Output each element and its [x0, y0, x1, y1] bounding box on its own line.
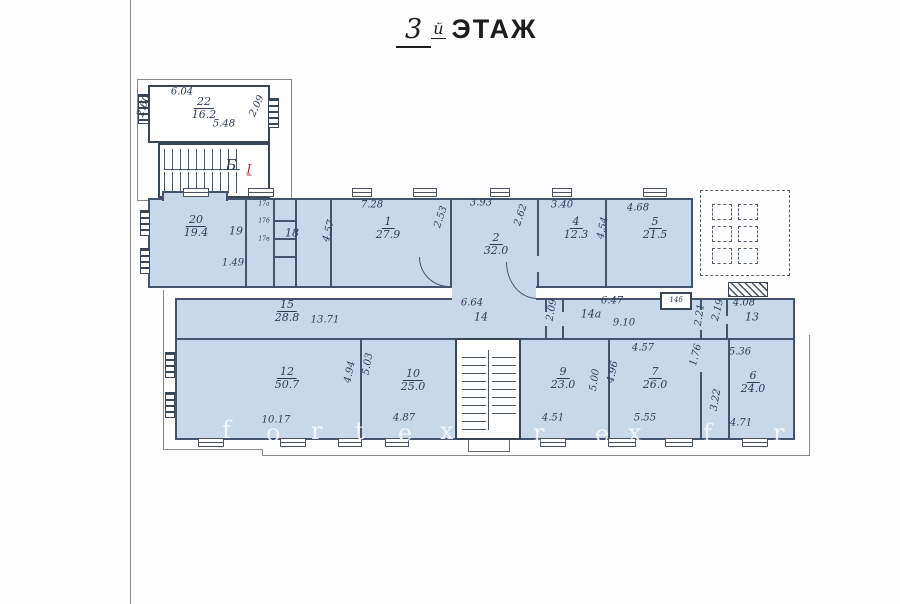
room-14a-label: 14а [581, 308, 602, 321]
room-1-label: 127.9 [376, 216, 401, 242]
room-19-label: 19 [229, 225, 243, 238]
room-2-label-area: 32.0 [484, 245, 509, 257]
title-word: ЭТАЖ [452, 14, 538, 44]
dim-1-49: 1.49 [222, 258, 244, 269]
room-18-label: 18 [285, 227, 299, 240]
watermark-letter: f [703, 419, 712, 447]
dim-3-93: 3.93 [470, 198, 492, 209]
entrance-porch [468, 440, 510, 452]
scan-border-line [130, 0, 131, 604]
watermark-letter: e [595, 420, 609, 448]
hatched-wall-block [728, 282, 768, 297]
room-5-label-number: 5 [649, 216, 662, 229]
main-stair-divider [488, 350, 489, 430]
partition-7-closet [700, 372, 702, 438]
room-2-label: 232.0 [484, 232, 509, 258]
partition-cells-18 [295, 200, 297, 286]
cell-label-3: 17в [258, 236, 269, 243]
title-floor-suffix: й [431, 19, 445, 39]
room-10-label: 1025.0 [401, 368, 426, 394]
dim-13-71: 13.71 [311, 315, 340, 326]
annex-window-right-icon [268, 98, 279, 128]
dim-4-08: 4.08 [733, 298, 755, 309]
room-20-label-number: 20 [186, 214, 206, 227]
window-icon [183, 188, 209, 197]
partition-2-4-upper [537, 200, 539, 256]
window-icon [248, 188, 274, 197]
shaft-cell-2 [738, 204, 758, 220]
watermark-letter: r [311, 417, 322, 445]
room-6-label: 624.0 [741, 370, 766, 396]
partition-19-cells [273, 200, 275, 286]
window-icon [665, 438, 693, 447]
shaft-cell-5 [712, 248, 732, 264]
watermark-letter: x [628, 419, 642, 447]
window-icon [140, 210, 150, 236]
dim-6-47: 6.47 [601, 296, 623, 307]
room-12-label-area: 50.7 [275, 379, 300, 391]
room-1-label-area: 27.9 [376, 229, 401, 241]
partition-1-2 [450, 200, 452, 286]
window-icon [140, 248, 150, 274]
room-14-label: 14 [474, 311, 488, 324]
room-4-label-area: 12.3 [564, 229, 589, 241]
shaft-cell-4 [738, 226, 758, 242]
partition-2-4-lower [537, 272, 539, 288]
room-22-label-area: 16.2 [192, 109, 217, 121]
window-icon [742, 438, 768, 447]
window-icon [552, 188, 572, 197]
window-icon [413, 188, 437, 197]
dim-3-40: 3.40 [551, 200, 573, 211]
watermark-letter: e [398, 419, 412, 447]
corridor-stub-2a [562, 300, 564, 312]
title-floor-number: 3 [396, 14, 431, 48]
cell-label-2: 17б [258, 218, 269, 225]
window-icon [352, 188, 372, 197]
room-9-label-number: 9 [557, 366, 570, 379]
room-7-label: 726.0 [643, 366, 668, 392]
room-15-label-area: 28.8 [275, 312, 300, 324]
room-2-label-number: 2 [490, 232, 503, 245]
partition-4-5 [605, 200, 607, 286]
room-20-label-area: 19.4 [184, 227, 209, 239]
room-7-label-number: 7 [649, 366, 662, 379]
room-12-label: 1250.7 [275, 366, 300, 392]
upper-room-band [148, 198, 693, 288]
room-20-label: 2019.4 [184, 214, 209, 240]
cell-label-1: 17а [258, 201, 269, 208]
dim-6-64: 6.64 [461, 298, 483, 309]
outer-line-bottom-1 [163, 449, 263, 450]
room-9-label: 923.0 [551, 366, 576, 392]
cell-divider-3 [275, 256, 295, 258]
shaft-cell-6 [738, 248, 758, 264]
window-icon [280, 438, 306, 447]
room-9-label-area: 23.0 [551, 379, 576, 391]
room-22-label: 2216.2 [192, 96, 217, 122]
partition-20-19 [245, 200, 247, 286]
shaft-cell-1 [712, 204, 732, 220]
partition-corr-13a [726, 300, 728, 316]
room-6-label-area: 24.0 [741, 383, 766, 395]
main-stair-flight-left [462, 350, 486, 430]
room-22-label-number: 22 [194, 96, 214, 109]
main-stair-flight-right [492, 350, 516, 414]
window-icon [490, 188, 510, 197]
watermark-letter: r [533, 419, 544, 447]
dim-5-36: 5.36 [729, 347, 751, 358]
window-icon [165, 352, 175, 378]
room-4-label-number: 4 [570, 216, 583, 229]
watermark-letter: r [773, 419, 784, 447]
room-15-label-number: 15 [277, 299, 297, 312]
window-icon [198, 438, 224, 447]
watermark-letter: f [222, 416, 231, 444]
room-12-label-number: 12 [277, 366, 297, 379]
window-icon [165, 392, 175, 418]
dim-4-51: 4.51 [542, 413, 564, 424]
shaft-cell-3 [712, 226, 732, 242]
room-13-label: 13 [745, 311, 759, 324]
dim-4-68: 4.68 [627, 203, 649, 214]
dim-4-57-b: 4.57 [632, 343, 654, 354]
room-15-label: 1528.8 [275, 299, 300, 325]
dim-9-10: 9.10 [613, 318, 635, 329]
outer-line-bottom-2 [262, 455, 810, 456]
room-4-label: 412.3 [564, 216, 589, 242]
room-14b-label: 14б [669, 296, 682, 304]
room-7-label-area: 26.0 [643, 379, 668, 391]
room-6-label-number: 6 [747, 370, 760, 383]
watermark-letter: x [440, 417, 454, 445]
room-10-label-area: 25.0 [401, 381, 426, 393]
window-icon [643, 188, 667, 197]
dim-4-71: 4.71 [730, 418, 752, 429]
dim-7-28: 7.28 [361, 200, 383, 211]
watermark-letter: o [266, 419, 280, 447]
annex-dim-top: 6.04 [171, 87, 193, 98]
entrance-mark: I [246, 163, 251, 178]
stair-label: Б [225, 156, 236, 174]
floor-plan-page: 3йЭТАЖ [0, 0, 900, 604]
corridor-stub-1b [545, 326, 547, 338]
cell-divider-1 [275, 220, 295, 222]
room-10-label-number: 10 [403, 368, 423, 381]
outer-line-right [809, 335, 810, 456]
room-1-label-number: 1 [382, 216, 395, 229]
corridor-stub-2b [562, 326, 564, 338]
watermark-letter: t [355, 417, 365, 445]
room-5-label: 521.5 [643, 216, 668, 242]
outer-line-left [163, 290, 164, 450]
page-title: 3йЭТАЖ [396, 14, 537, 45]
room-5-label-area: 21.5 [643, 229, 668, 241]
